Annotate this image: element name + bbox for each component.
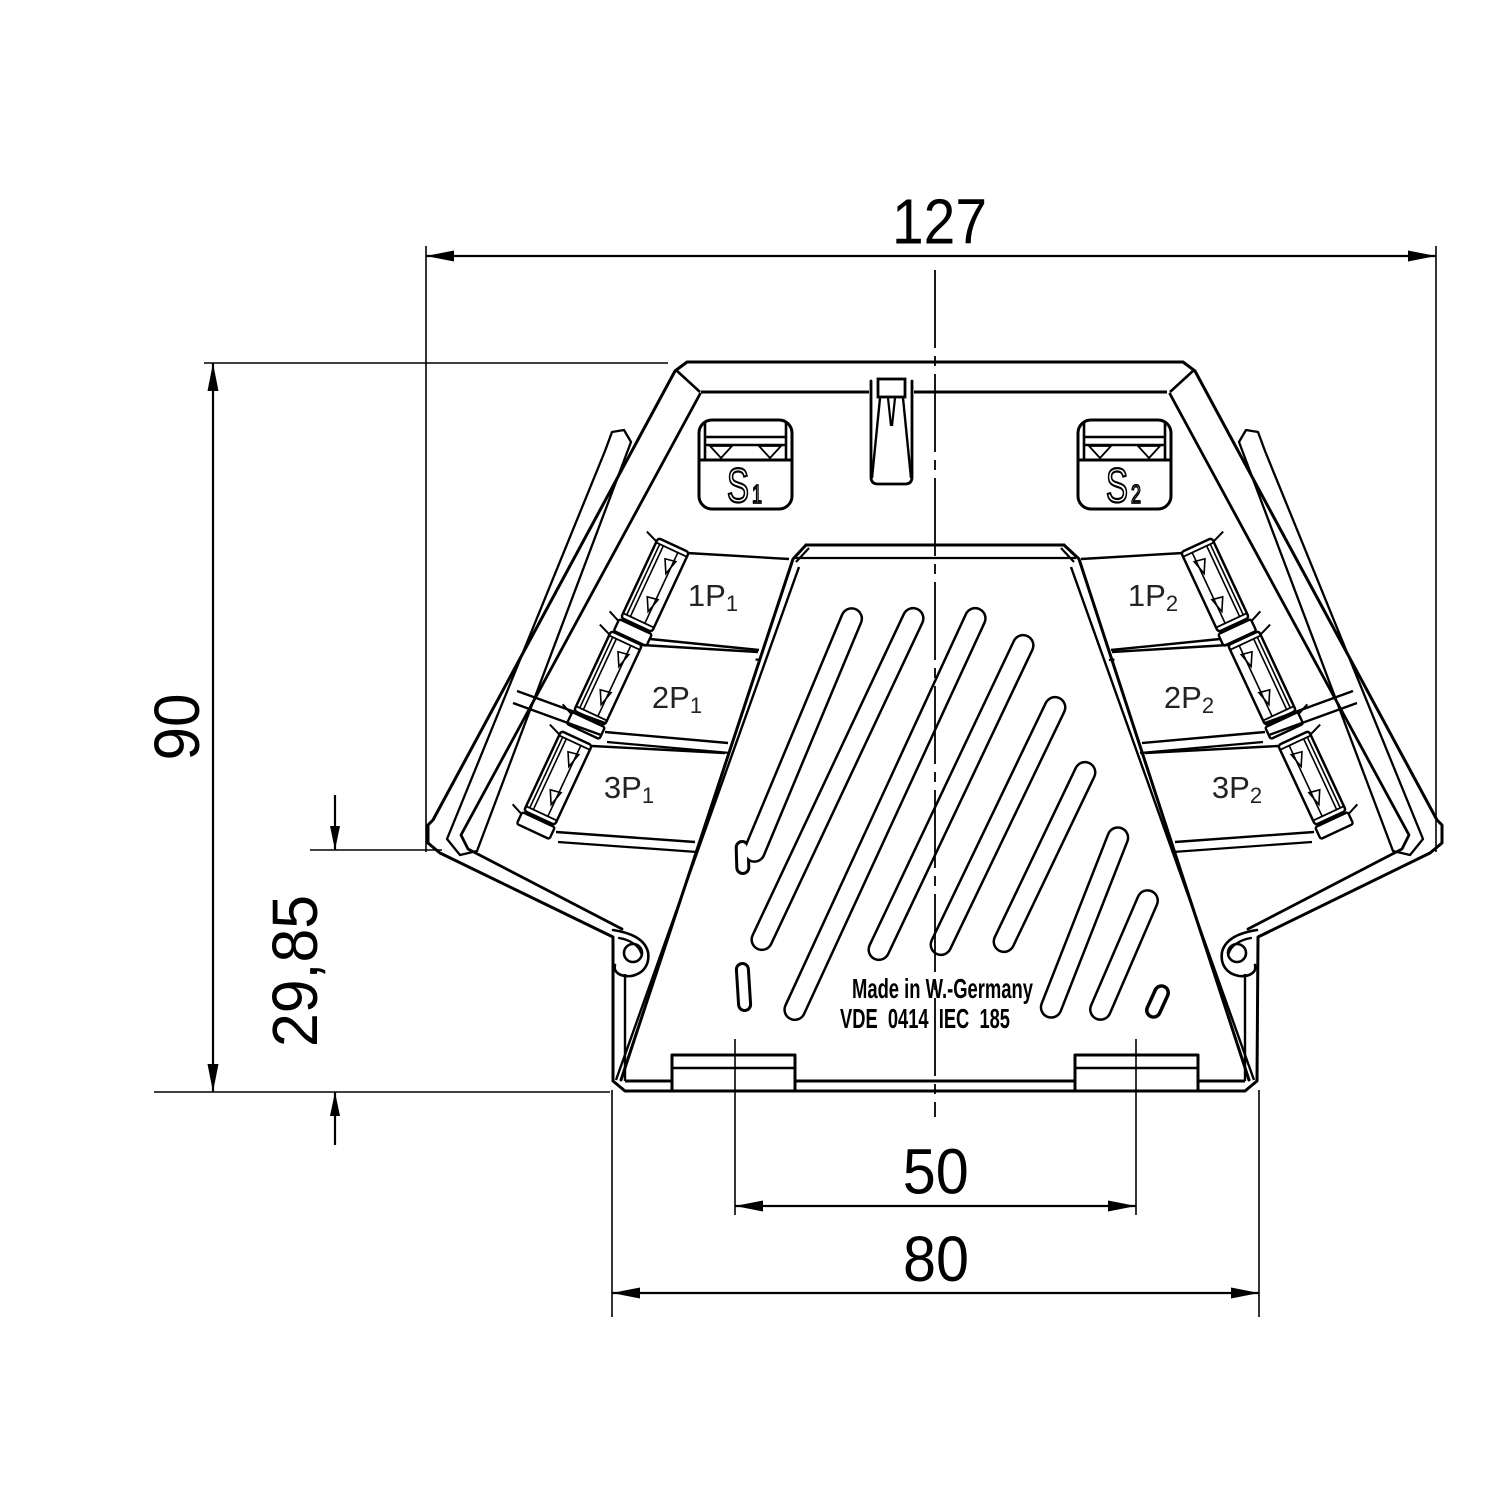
svg-text:S: S [727, 460, 749, 513]
svg-text:1: 1 [752, 479, 762, 509]
svg-text:50: 50 [903, 1136, 969, 1208]
svg-text:2: 2 [1131, 479, 1141, 509]
svg-text:S: S [1106, 460, 1128, 513]
svg-text:VDE 0414 IEC 185: VDE 0414 IEC 185 [840, 1003, 1010, 1034]
svg-text:127: 127 [892, 186, 987, 258]
svg-text:90: 90 [141, 694, 213, 761]
svg-text:Made in W.-Germany: Made in W.-Germany [852, 973, 1033, 1004]
svg-text:29,85: 29,85 [259, 895, 331, 1047]
svg-text:80: 80 [903, 1223, 969, 1295]
